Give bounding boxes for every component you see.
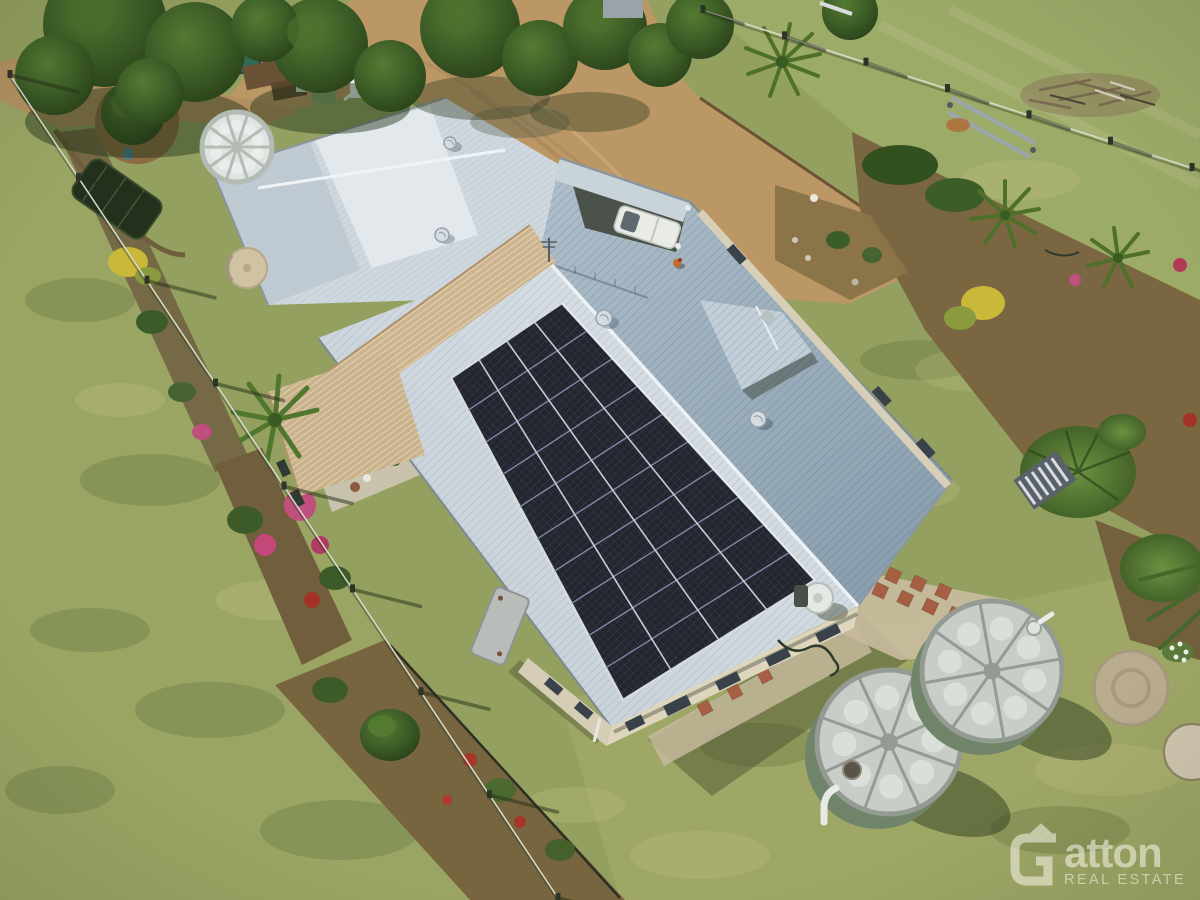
vignette: [0, 0, 1200, 900]
scene-canvas: atton REAL ESTATE: [0, 0, 1200, 900]
watermark-brand-text: atton: [1064, 829, 1162, 876]
watermark: atton REAL ESTATE: [1015, 828, 1186, 888]
watermark-tagline: REAL ESTATE: [1064, 872, 1186, 888]
aerial-photo: atton REAL ESTATE: [0, 0, 1200, 900]
